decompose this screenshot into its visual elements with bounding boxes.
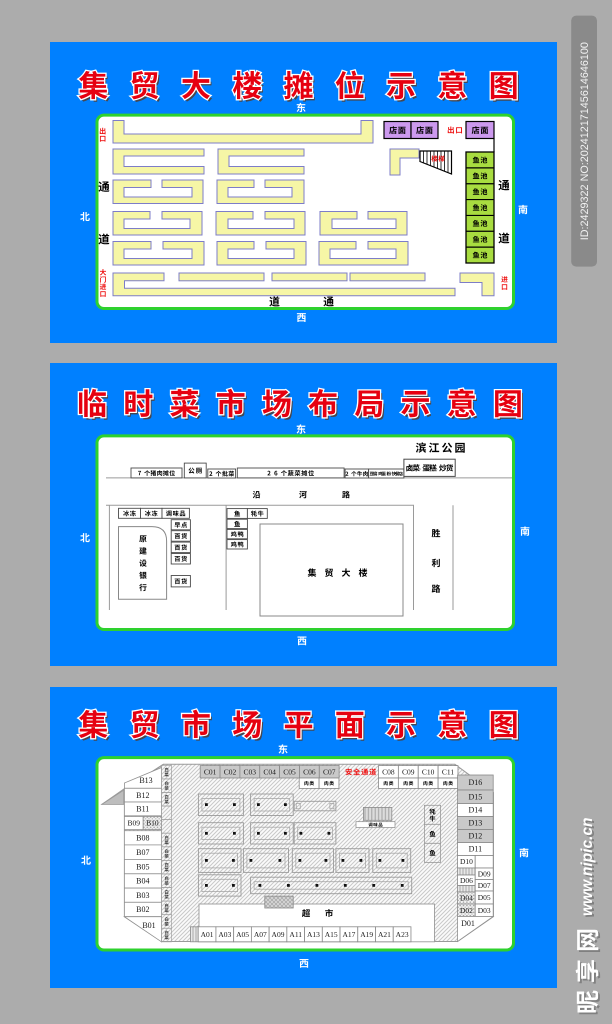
svg-text:B11: B11 [136,805,149,814]
svg-text:C02: C02 [224,767,237,776]
svg-text:C11: C11 [442,767,454,776]
svg-text:D09: D09 [478,869,491,878]
svg-text:B03: B03 [136,891,149,900]
svg-text:C06: C06 [303,767,316,776]
svg-text:A23: A23 [396,930,409,939]
svg-text:D03: D03 [478,906,491,915]
svg-text:D07: D07 [478,881,491,890]
svg-text:B05: B05 [136,862,149,871]
svg-text:C10: C10 [422,767,435,776]
svg-text:B02: B02 [136,905,149,914]
svg-text:A07: A07 [254,930,267,939]
svg-text:A03: A03 [218,930,231,939]
svg-text:D06: D06 [460,876,473,885]
svg-text:C07: C07 [323,767,336,776]
svg-text:D02: D02 [460,906,473,915]
svg-text:C04: C04 [263,767,276,776]
svg-text:C05: C05 [283,767,296,776]
svg-text:B09: B09 [128,819,141,828]
svg-text:D10: D10 [460,857,473,866]
svg-text:A21: A21 [378,930,391,939]
svg-text:C01: C01 [204,767,217,776]
svg-text:B01: B01 [142,921,155,930]
svg-text:B07: B07 [136,848,149,857]
svg-text:A15: A15 [325,930,338,939]
svg-text:A11: A11 [289,930,302,939]
svg-text:A05: A05 [236,930,249,939]
svg-text:A17: A17 [342,930,355,939]
svg-text:C03: C03 [244,767,257,776]
svg-text:A09: A09 [272,930,285,939]
svg-text:D14: D14 [469,806,483,815]
svg-text:C09: C09 [402,767,415,776]
svg-text:B13: B13 [139,776,152,785]
svg-text:A01: A01 [201,930,214,939]
svg-text:D05: D05 [478,893,491,902]
svg-text:C08: C08 [382,767,395,776]
svg-text:A13: A13 [307,930,320,939]
svg-text:D04: D04 [460,894,473,903]
svg-text:D01: D01 [461,919,475,928]
svg-text:D11: D11 [469,845,482,854]
svg-text:B12: B12 [136,791,149,800]
svg-text:ID:2429322 NO:2024121714561464: ID:2429322 NO:20241217145614646100 [579,42,591,240]
svg-text:D15: D15 [469,793,483,802]
svg-text:D12: D12 [469,832,483,841]
svg-text:B04: B04 [136,877,149,886]
svg-text:B08: B08 [136,834,149,843]
svg-text:D16: D16 [469,778,483,787]
svg-text:D13: D13 [469,819,483,828]
svg-text:B10: B10 [146,819,159,828]
svg-text:www.nipic.cn: www.nipic.cn [579,818,596,916]
svg-text:A19: A19 [360,930,373,939]
